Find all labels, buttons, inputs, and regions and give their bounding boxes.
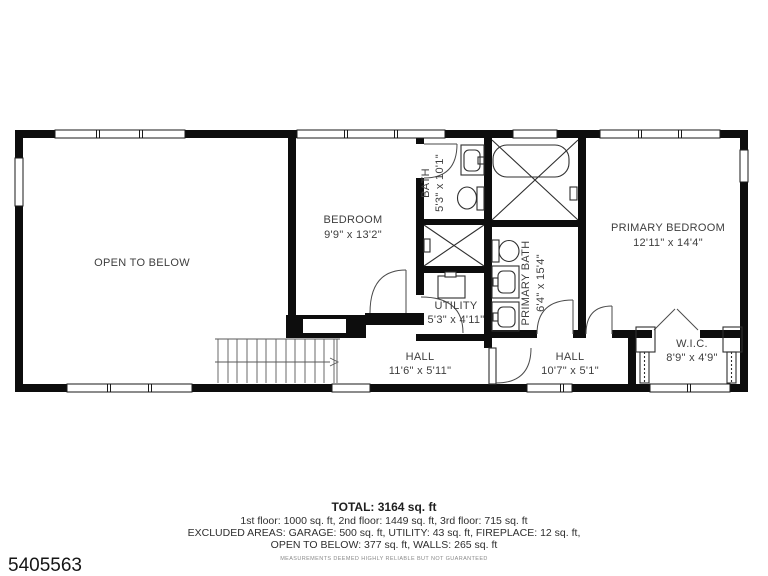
label-wic: W.I.C.: [676, 338, 708, 350]
bath-sink: [461, 145, 484, 175]
label-bedroom-dims: 9'9" x 13'2": [324, 229, 382, 241]
bedroom-door: [370, 270, 406, 313]
primary-toilet: [492, 240, 519, 262]
primary-shower: [492, 140, 578, 220]
floorplan-page: OPEN TO BELOW BEDROOM 9'9" x 13'2" BATH …: [0, 0, 768, 576]
hall-door: [489, 348, 531, 384]
label-primary-bath-dims: 6'4" x 15'4": [535, 254, 547, 312]
disclaimer-text: MEASUREMENTS DEEMED HIGHLY RELIABLE BUT …: [280, 556, 488, 562]
label-primary-bath: PRIMARY BATH: [520, 241, 532, 326]
bath-toilet: [458, 187, 485, 210]
primary-bedroom-door: [586, 306, 612, 334]
primary-tub: [493, 145, 569, 177]
summary-excluded-1: EXCLUDED AREAS: GARAGE: 500 sq. ft, UTIL…: [188, 527, 581, 539]
label-primary-bedroom: PRIMARY BEDROOM: [611, 222, 725, 234]
staircase: [215, 339, 340, 383]
listing-id: 5405563: [8, 555, 82, 576]
washer-dryer: [438, 272, 465, 298]
label-hall-left-dims: 11'6" x 5'11": [389, 365, 452, 377]
label-hall-right: HALL: [556, 351, 585, 363]
summary-total: TOTAL: 3164 sq. ft: [332, 500, 437, 514]
floorplan-canvas: OPEN TO BELOW BEDROOM 9'9" x 13'2" BATH …: [0, 0, 768, 576]
summary-excluded-2: OPEN TO BELOW: 377 sq. ft, WALLS: 265 sq…: [271, 539, 498, 551]
label-utility-dims: 5'3" x 4'11": [428, 314, 485, 326]
label-hall-right-dims: 10'7" x 5'1": [541, 365, 599, 377]
label-wic-dims: 8'9" x 4'9": [666, 352, 717, 364]
label-bedroom: BEDROOM: [324, 214, 383, 226]
bath-shower: [424, 225, 484, 266]
summary-floors: 1st floor: 1000 sq. ft, 2nd floor: 1449 …: [240, 515, 527, 527]
primary-sink-1: [492, 266, 519, 298]
label-hall-left: HALL: [406, 351, 435, 363]
label-utility: UTILITY: [434, 300, 477, 312]
label-primary-bedroom-dims: 12'11" x 14'4": [633, 237, 703, 249]
label-open-to-below: OPEN TO BELOW: [94, 257, 190, 269]
label-bath: BATH: [420, 168, 432, 198]
label-bath-dims: 5'3" x 10'1": [434, 154, 446, 212]
wic-double-doors: [654, 309, 698, 330]
primary-sink-2: [492, 302, 519, 331]
area-summary: TOTAL: 3164 sq. ft 1st floor: 1000 sq. f…: [188, 500, 581, 562]
